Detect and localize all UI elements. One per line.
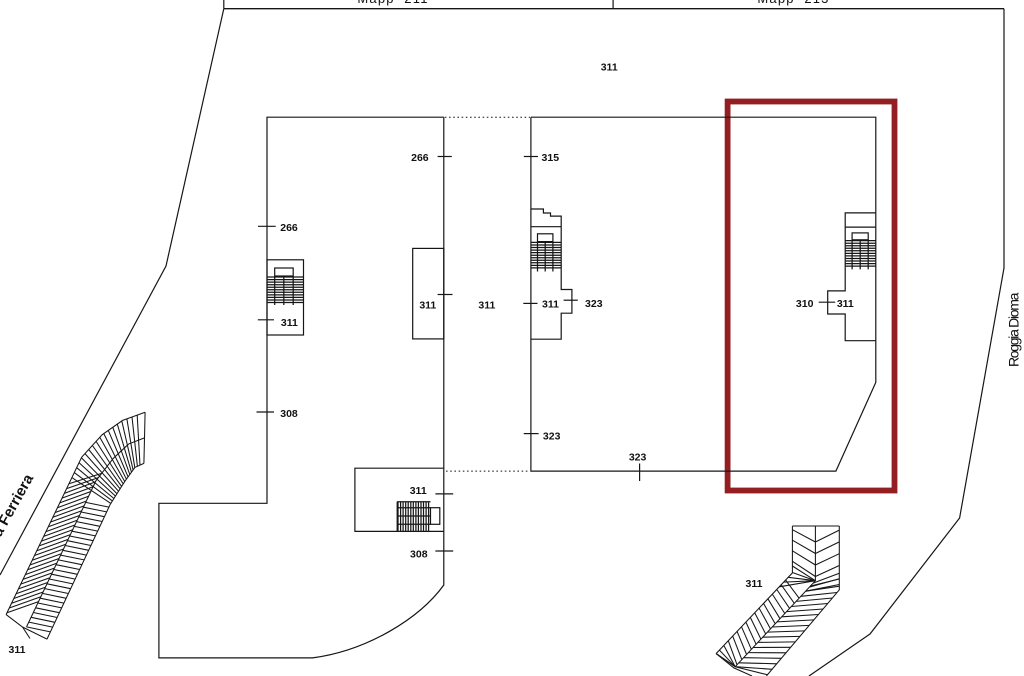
svg-text:311: 311	[478, 299, 495, 311]
svg-text:308: 308	[280, 408, 298, 420]
svg-text:Roggia Dioma: Roggia Dioma	[1005, 292, 1021, 367]
svg-text:310: 310	[796, 298, 814, 310]
svg-text:323: 323	[629, 451, 647, 463]
svg-text:311: 311	[746, 578, 763, 590]
svg-text:311: 311	[542, 299, 559, 311]
svg-text:323: 323	[543, 431, 561, 443]
svg-text:Mapp 211: Mapp 211	[357, 0, 428, 6]
svg-text:323: 323	[585, 298, 603, 310]
svg-text:311: 311	[9, 644, 26, 656]
svg-text:266: 266	[280, 222, 298, 234]
svg-text:311: 311	[410, 485, 427, 497]
svg-text:266: 266	[411, 152, 429, 164]
svg-text:311: 311	[419, 299, 436, 311]
svg-text:Mapp 213: Mapp 213	[757, 0, 829, 6]
svg-text:315: 315	[542, 152, 560, 164]
svg-text:311: 311	[837, 298, 854, 310]
svg-text:308: 308	[410, 548, 428, 560]
svg-text:311: 311	[281, 317, 298, 329]
svg-text:311: 311	[601, 61, 618, 73]
